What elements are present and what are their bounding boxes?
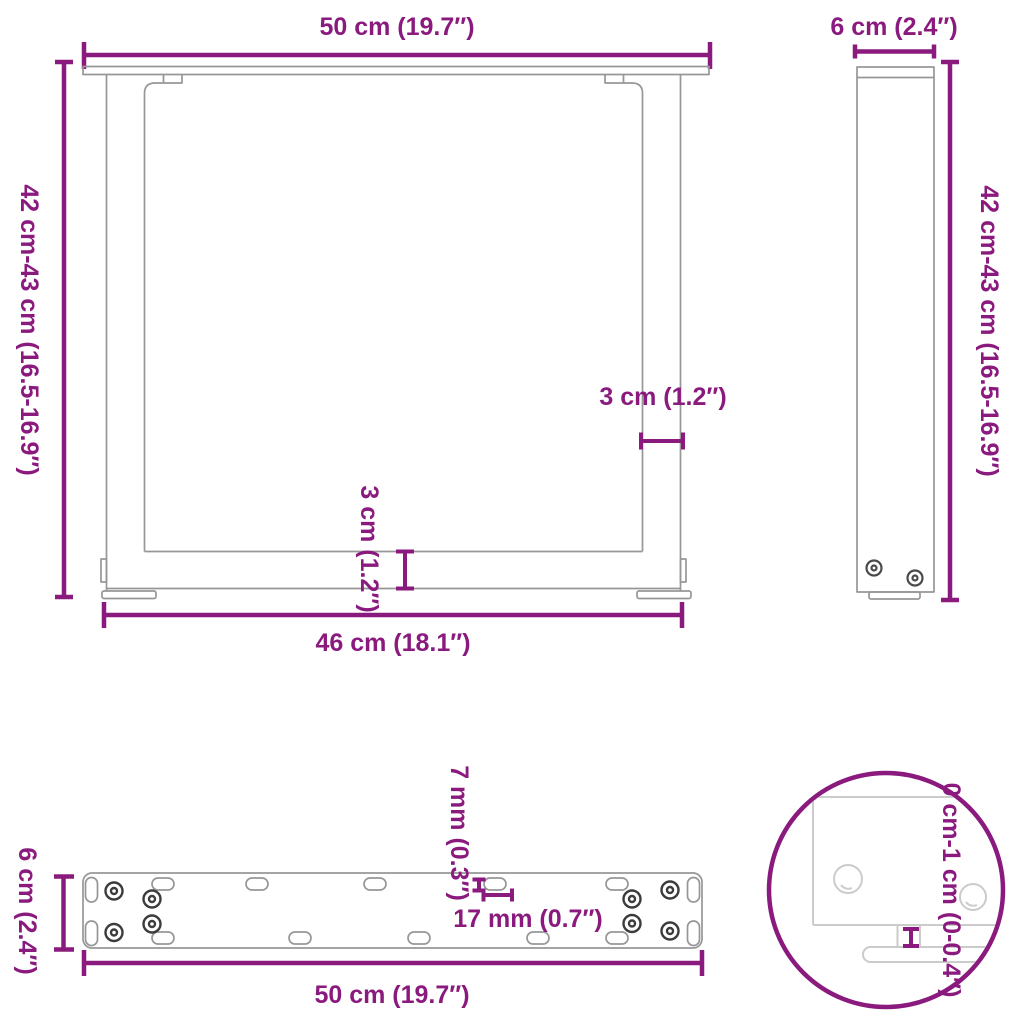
plate-slot <box>86 921 98 946</box>
plate-slot <box>606 932 628 944</box>
side-depth-label: 6 cm (2.4″) <box>830 13 957 41</box>
side-screw <box>908 571 923 586</box>
detail-view: 0 cm-1 cm (0-0.4″) <box>769 773 1003 1007</box>
plate-length-dimension <box>84 950 702 976</box>
detail-circle <box>769 773 1003 1007</box>
front-inner-width-dimension <box>104 602 682 628</box>
side-foot <box>869 592 920 599</box>
front-leg-width-label: 3 cm (1.2″) <box>599 383 726 411</box>
side-screw <box>867 561 882 576</box>
front-right-foot <box>637 591 691 599</box>
technical-drawing: 50 cm (19.7″) 42 cm-43 cm (16.5-16.9″) <box>0 0 1024 1024</box>
plate-slot <box>152 932 174 944</box>
plate-slot <box>484 878 506 890</box>
front-inner-width-label: 46 cm (18.1″) <box>315 629 470 657</box>
detail-content <box>813 797 1002 962</box>
front-view: 50 cm (19.7″) 42 cm-43 cm (16.5-16.9″) <box>15 13 727 657</box>
plate-hole-length-label: 17 mm (0.7″) <box>453 905 603 933</box>
front-crossbar-dimension <box>396 552 414 589</box>
front-left-foot <box>102 591 156 599</box>
plate-depth-label: 6 cm (2.4″) <box>13 847 41 974</box>
front-width-label: 50 cm (19.7″) <box>319 13 474 41</box>
side-height-dimension <box>941 62 959 600</box>
side-view: 6 cm (2.4″) 42 cm-43 cm (16.5-16.9″) <box>830 13 1003 600</box>
plate-slot <box>246 878 268 890</box>
front-width-dimension <box>84 42 710 69</box>
plate-slot <box>408 932 430 944</box>
side-height-label: 42 cm-43 cm (16.5-16.9″) <box>975 185 1003 476</box>
plate-slot <box>364 878 386 890</box>
side-depth-dimension <box>855 45 934 59</box>
front-frame-outline <box>83 67 709 599</box>
plate-view: 6 cm (2.4″) <box>13 765 702 1009</box>
plate-slot <box>527 932 549 944</box>
front-height-dimension <box>55 62 73 597</box>
detail-adjustment-dimension <box>903 929 919 946</box>
front-leg-width-dimension <box>641 433 683 450</box>
detail-adjustment-label: 0 cm-1 cm (0-0.4″) <box>937 783 965 998</box>
front-crossbar-label: 3 cm (1.2″) <box>355 485 383 612</box>
plate-hole-width-label: 7 mm (0.3″) <box>445 765 473 901</box>
plate-slot <box>289 932 311 944</box>
plate-slot <box>86 878 98 903</box>
detail-foot <box>863 947 993 962</box>
plate-outline <box>83 873 702 948</box>
side-leg-outline <box>857 67 934 599</box>
plate-length-label: 50 cm (19.7″) <box>314 981 469 1009</box>
plate-slot <box>688 921 700 946</box>
plate-slot <box>688 878 700 903</box>
plate-slot <box>152 878 174 890</box>
plate-depth-dimension <box>54 876 74 950</box>
plate-slot <box>606 878 628 890</box>
front-height-label: 42 cm-43 cm (16.5-16.9″) <box>15 184 43 475</box>
